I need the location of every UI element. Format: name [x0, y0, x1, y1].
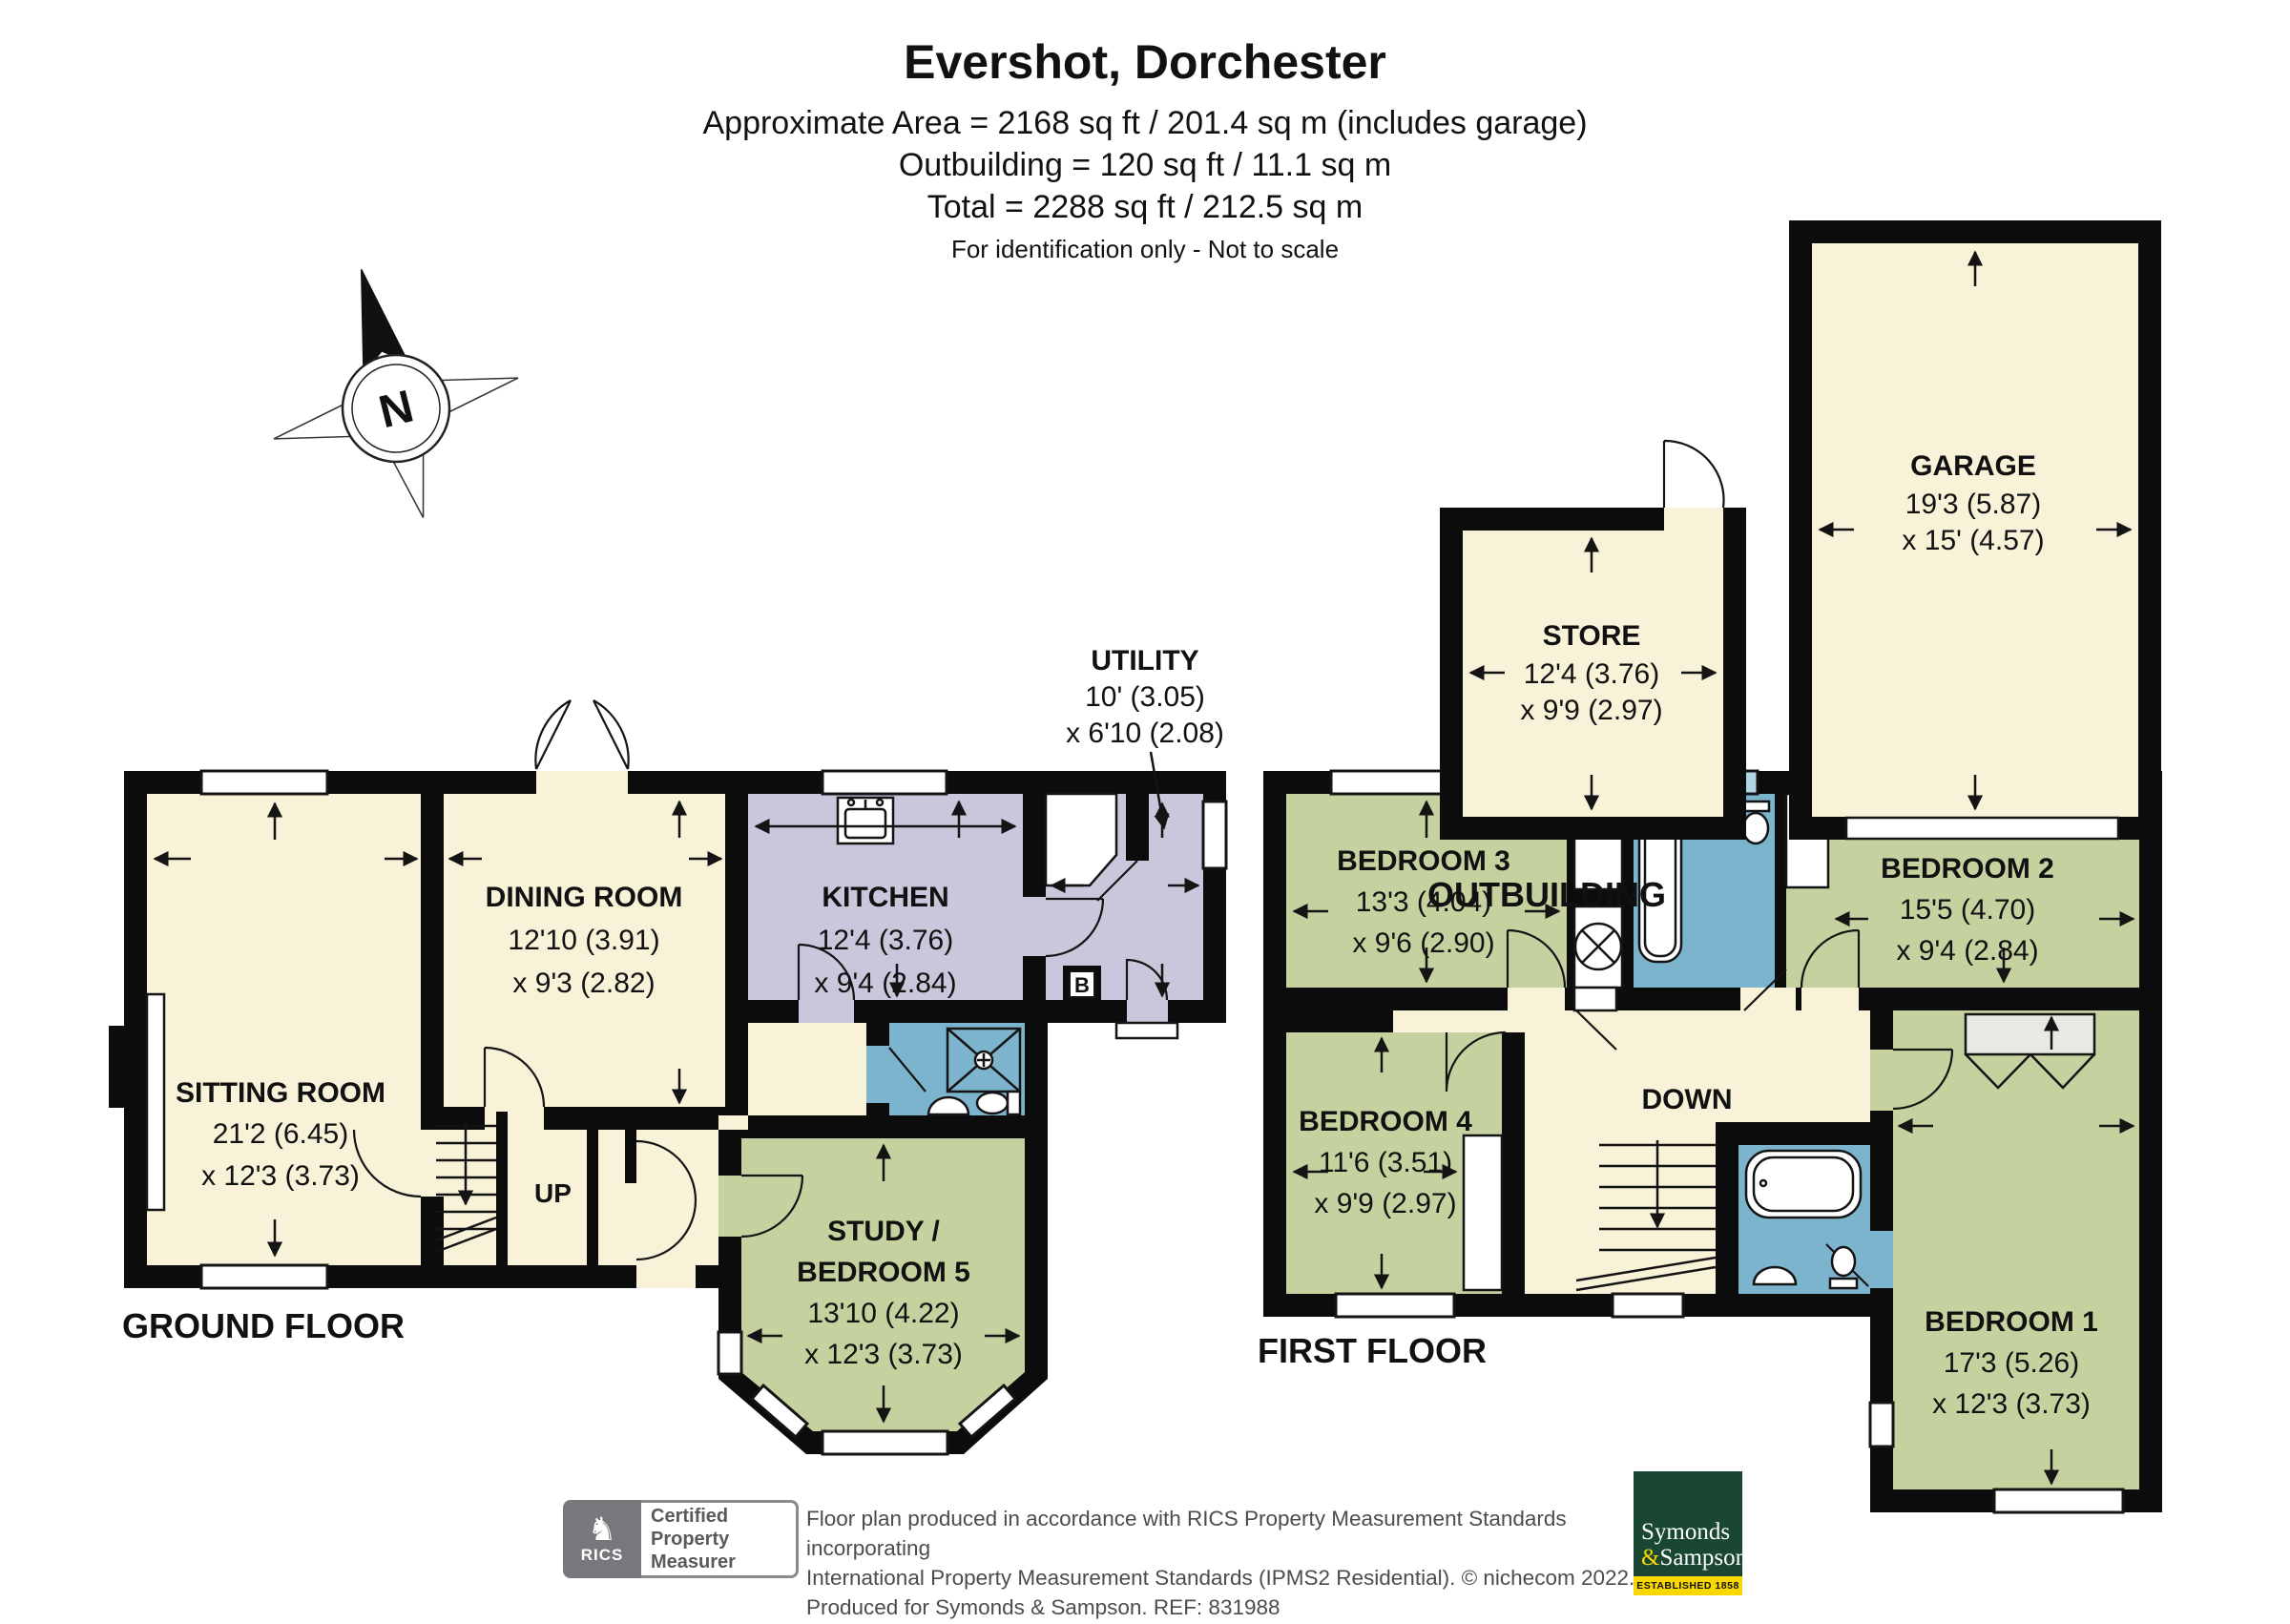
fireplace [147, 994, 164, 1210]
disclaimer-line3: Produced for Symonds & Sampson. REF: 831… [806, 1593, 1636, 1622]
stairs-up-label: UP [534, 1178, 572, 1208]
outbuilding-title: OUTBUILDING [1427, 875, 1666, 914]
store-name: STORE [1543, 620, 1641, 652]
disclaimer-line1: Floor plan produced in accordance with R… [806, 1504, 1636, 1563]
utility-dim1: 10' (3.05) [1085, 681, 1205, 713]
stair-wall [496, 1112, 508, 1265]
window [201, 771, 327, 794]
bay-window [822, 1431, 947, 1454]
bathroom-toilet [1742, 802, 1769, 843]
bedroom4-name: BEDROOM 4 [1299, 1106, 1472, 1137]
agent-name-line2: Sampson [1659, 1545, 1747, 1571]
bedroom2-dim2: x 9'4 (2.84) [1896, 935, 2038, 967]
ground-floor-title: GROUND FLOOR [122, 1306, 405, 1345]
kitchen-name: KITCHEN [822, 882, 948, 913]
window [1203, 802, 1226, 868]
rics-certified-line2: Property [651, 1528, 796, 1551]
utility-name: UTILITY [1091, 645, 1198, 677]
bedroom1-dim1: 17'3 (5.26) [1944, 1347, 2080, 1379]
floorplan-page: Evershot, Dorchester Approximate Area = … [0, 0, 2290, 1619]
agent-established-band: ESTABLISHED 1858 [1634, 1576, 1742, 1595]
kitchen-sink [838, 798, 893, 843]
not-to-scale-note: For identification only - Not to scale [0, 235, 2290, 264]
rics-brand-text: RICS [581, 1546, 624, 1565]
room-sitting [147, 794, 421, 1265]
dining-room-dim1: 12'10 (3.91) [508, 925, 659, 956]
window [1870, 1403, 1893, 1447]
window [1994, 1489, 2123, 1512]
outbuilding-area-line: Outbuilding = 120 sq ft / 11.1 sq m [0, 147, 2290, 184]
study-name1: STUDY / [827, 1216, 940, 1247]
stairs-down-label: DOWN [1642, 1084, 1733, 1115]
window [822, 771, 947, 794]
bedroom3-name: BEDROOM 3 [1337, 845, 1510, 877]
agent-ampersand: & [1641, 1545, 1659, 1571]
bedroom2-dim1: 15'5 (4.70) [1900, 894, 2036, 926]
first-floor-title: FIRST FLOOR [1258, 1331, 1487, 1370]
page-title: Evershot, Dorchester [0, 34, 2290, 90]
sitting-room-dim1: 21'2 (6.45) [213, 1118, 349, 1150]
rics-certified-line1: Certified [651, 1505, 796, 1528]
study-dim2: x 12'3 (3.73) [804, 1339, 963, 1370]
store-dim1: 12'4 (3.76) [1524, 658, 1660, 690]
rics-lion-glyph: ♞ [588, 1513, 616, 1546]
dining-room-dim2: x 9'3 (2.82) [512, 968, 655, 999]
disclaimer-line2: International Property Measurement Stand… [806, 1563, 1636, 1593]
north-compass-icon: N [239, 239, 546, 549]
approx-area-line: Approximate Area = 2168 sq ft / 201.4 sq… [0, 105, 2290, 142]
garage-name: GARAGE [1910, 450, 2036, 482]
ensuite-bath [1746, 1151, 1861, 1218]
chimney-projection [109, 1026, 126, 1108]
rics-certified-badge: ♞ RICS Certified Property Measurer [563, 1500, 799, 1578]
study-dim1: 13'10 (4.22) [807, 1298, 959, 1329]
symonds-sampson-logo: Symonds &Sampson ESTABLISHED 1858 [1634, 1471, 1742, 1595]
window [1613, 1294, 1683, 1317]
store-dim2: x 9'9 (2.97) [1520, 695, 1662, 726]
rics-lion-icon: ♞ RICS [563, 1500, 641, 1578]
rear-step [1116, 1023, 1177, 1038]
window [1336, 1294, 1454, 1317]
sitting-room-name: SITTING ROOM [176, 1077, 385, 1109]
window [718, 1332, 741, 1374]
bedroom4-dim1: 11'6 (3.51) [1319, 1147, 1452, 1178]
toilet [977, 1092, 1020, 1114]
boiler: B [1063, 966, 1101, 1002]
garage-door [1846, 818, 2118, 839]
sitting-room-dim2: x 12'3 (3.73) [201, 1160, 360, 1192]
bedroom2-name: BEDROOM 2 [1881, 853, 2054, 885]
wardrobe [1464, 1135, 1502, 1290]
bedroom4-dim2: x 9'9 (2.97) [1314, 1188, 1456, 1219]
bedroom1-name: BEDROOM 1 [1925, 1306, 2098, 1338]
bedroom3-dim2: x 9'6 (2.90) [1352, 927, 1494, 959]
agent-name-line1: Symonds [1641, 1519, 1742, 1545]
outbuilding-plan: STORE 12'4 (3.76) x 9'9 (2.97) GARAGE 19… [1427, 220, 2161, 914]
airing-cupboard [1574, 906, 1622, 988]
footer-disclaimer: Floor plan produced in accordance with R… [806, 1504, 1636, 1622]
kitchen-dim2: x 9'4 (2.84) [814, 968, 956, 999]
bedroom1-dim2: x 12'3 (3.73) [1932, 1388, 2091, 1420]
dining-room-name: DINING ROOM [486, 882, 683, 913]
rics-certified-line3: Measurer [651, 1551, 796, 1573]
ensuite-toilet [1830, 1247, 1857, 1288]
first-floor-plan: BEDROOM 3 13'3 (4.04) x 9'6 (2.90) BEDRO… [1258, 771, 2162, 1512]
garage-dim2: x 15' (4.57) [1902, 525, 2044, 556]
kitchen-dim1: 12'4 (3.76) [818, 925, 954, 956]
utility-dim2: x 6'10 (2.08) [1066, 718, 1224, 749]
garage-dim1: 19'3 (5.87) [1905, 489, 2042, 520]
window [1331, 771, 1450, 794]
boiler-label: B [1074, 973, 1090, 997]
ground-floor-plan: B [109, 645, 1226, 1454]
total-area-line: Total = 2288 sq ft / 212.5 sq m [0, 189, 2290, 226]
study-name2: BEDROOM 5 [797, 1257, 970, 1288]
window [201, 1265, 327, 1288]
